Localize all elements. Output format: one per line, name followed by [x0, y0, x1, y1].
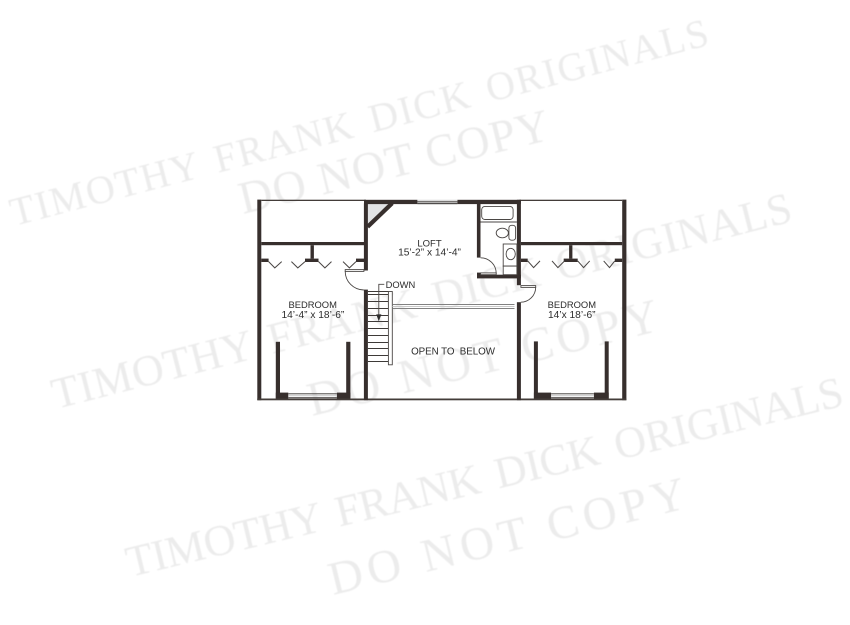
- svg-text:14’-4” x 18’-6”: 14’-4” x 18’-6”: [281, 310, 344, 321]
- svg-text:14’x 18’-6”: 14’x 18’-6”: [548, 310, 596, 321]
- svg-text:BEDROOM: BEDROOM: [548, 299, 597, 310]
- svg-text:15’-2” x 14’-4”: 15’-2” x 14’-4”: [398, 248, 461, 259]
- svg-text:BEDROOM: BEDROOM: [288, 299, 337, 310]
- svg-text:DOWN: DOWN: [386, 279, 416, 290]
- svg-text:OPEN TO BELOW: OPEN TO BELOW: [411, 347, 496, 358]
